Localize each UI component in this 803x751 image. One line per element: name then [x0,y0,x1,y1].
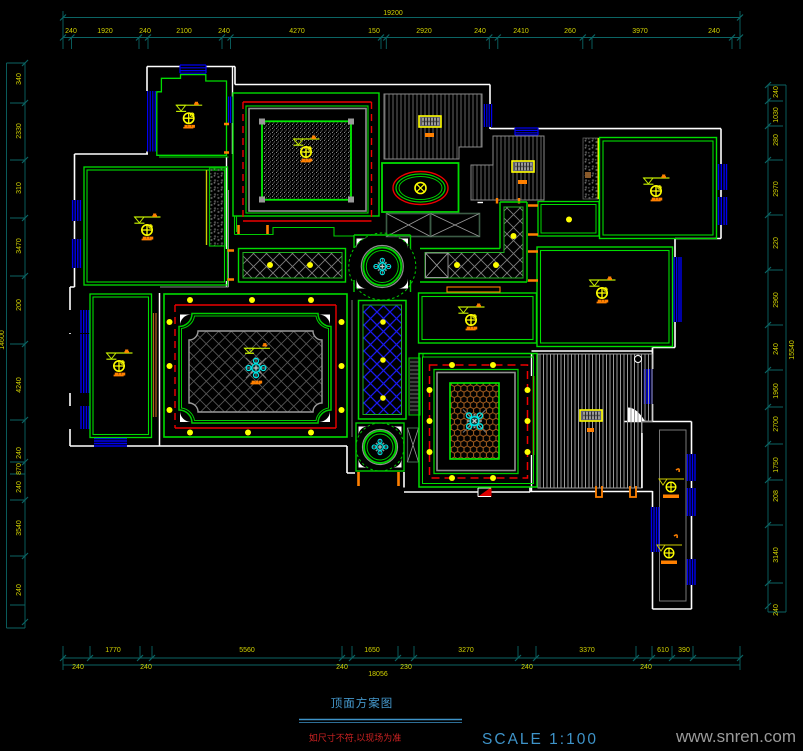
svg-text:240: 240 [773,343,780,355]
svg-text:240: 240 [640,664,652,671]
svg-text:280: 280 [773,134,780,146]
svg-text:2970: 2970 [773,181,780,197]
svg-text:15540: 15540 [789,340,796,360]
svg-text:240: 240 [139,28,151,35]
svg-text:2960: 2960 [773,292,780,308]
svg-text:240: 240 [474,28,486,35]
svg-text:240: 240 [140,664,152,671]
svg-text:19200: 19200 [383,10,403,17]
svg-text:顶面方案图: 顶面方案图 [331,696,394,710]
svg-text:SCALE 1:100: SCALE 1:100 [482,731,598,748]
svg-text:260: 260 [564,28,576,35]
svg-text:3140: 3140 [773,547,780,563]
svg-text:870: 870 [16,463,23,475]
svg-text:18056: 18056 [368,671,388,678]
svg-text:www.snren.com: www.snren.com [675,727,796,746]
svg-text:240: 240 [16,447,23,459]
svg-text:240: 240 [773,86,780,98]
svg-text:230: 230 [400,664,412,671]
svg-text:3470: 3470 [16,238,23,254]
svg-text:610: 610 [657,647,669,654]
svg-text:1650: 1650 [364,647,380,654]
svg-text:3540: 3540 [16,520,23,536]
svg-text:5560: 5560 [239,647,255,654]
svg-text:1030: 1030 [773,107,780,123]
svg-text:240: 240 [708,28,720,35]
svg-text:240: 240 [72,664,84,671]
svg-text:如尺寸不符,以现场为准: 如尺寸不符,以现场为准 [309,732,402,743]
svg-text:2330: 2330 [16,123,23,139]
svg-text:1750: 1750 [773,457,780,473]
svg-text:14600: 14600 [0,330,6,350]
svg-text:240: 240 [218,28,230,35]
svg-text:240: 240 [521,664,533,671]
svg-text:1770: 1770 [105,647,121,654]
svg-text:310: 310 [16,182,23,194]
svg-text:390: 390 [678,647,690,654]
svg-text:340: 340 [16,73,23,85]
svg-text:4240: 4240 [16,377,23,393]
svg-text:3370: 3370 [579,647,595,654]
svg-text:2920: 2920 [416,28,432,35]
svg-text:3970: 3970 [632,28,648,35]
svg-text:240: 240 [16,481,23,493]
svg-text:2100: 2100 [176,28,192,35]
svg-text:200: 200 [16,299,23,311]
svg-text:240: 240 [65,28,77,35]
svg-text:240: 240 [16,584,23,596]
svg-text:1960: 1960 [773,383,780,399]
svg-text:4270: 4270 [289,28,305,35]
svg-text:220: 220 [773,237,780,249]
svg-text:3270: 3270 [458,647,474,654]
svg-text:240: 240 [773,604,780,616]
svg-text:2700: 2700 [773,416,780,432]
svg-text:208: 208 [773,490,780,502]
svg-text:1920: 1920 [97,28,113,35]
svg-text:2410: 2410 [513,28,529,35]
svg-text:240: 240 [336,664,348,671]
svg-text:150: 150 [368,28,380,35]
